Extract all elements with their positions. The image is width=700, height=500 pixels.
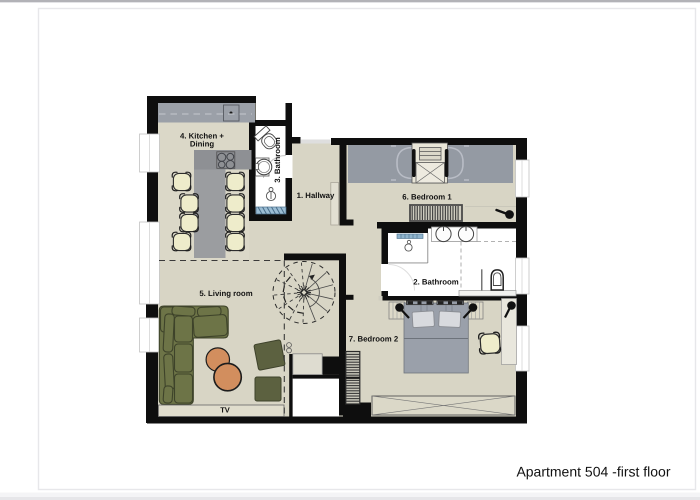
svg-text:2. Bathroom: 2. Bathroom <box>413 278 459 287</box>
svg-text:1. Hallway: 1. Hallway <box>297 191 335 200</box>
svg-text:Apartment 504 -first floor: Apartment 504 -first floor <box>516 464 670 480</box>
svg-text:Dining: Dining <box>190 140 214 149</box>
svg-text:6. Bedroom 1: 6. Bedroom 1 <box>402 193 452 202</box>
svg-text:TV: TV <box>220 406 230 415</box>
svg-text:3. Bathroom: 3. Bathroom <box>273 137 282 183</box>
svg-text:5. Living room: 5. Living room <box>199 289 252 298</box>
svg-text:7. Bedroom 2: 7. Bedroom 2 <box>349 335 399 344</box>
